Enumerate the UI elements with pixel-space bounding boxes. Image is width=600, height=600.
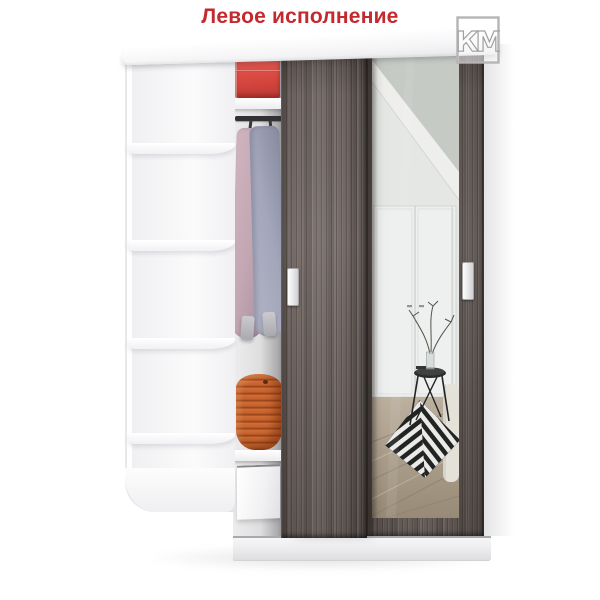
corner-shelf-cavity xyxy=(132,54,235,468)
corner-shelf-unit xyxy=(125,50,235,512)
corner-shelf xyxy=(129,433,235,444)
corner-shelf xyxy=(129,143,235,154)
km-stamp-icon: КМ xyxy=(456,16,500,64)
base-plinth xyxy=(233,536,491,561)
brand-logo-text: КМ xyxy=(456,25,500,58)
corner-shelf xyxy=(129,338,235,349)
interior-lower-shelf xyxy=(233,450,283,461)
sliding-door-mirror xyxy=(367,42,484,536)
mirror-panel xyxy=(372,56,459,518)
garment-cuff xyxy=(262,312,277,337)
hanging-garment-grey xyxy=(249,126,283,337)
page-title: Левое исполнение xyxy=(0,5,600,29)
right-side-panel-highlight xyxy=(484,44,514,536)
storage-box xyxy=(235,60,280,98)
corner-shelf xyxy=(129,240,235,251)
sliding-door-wood xyxy=(281,46,367,538)
garment-cuff xyxy=(240,316,255,341)
brand-logo: КМ xyxy=(456,16,500,64)
wood-door-handle[interactable] xyxy=(287,268,299,306)
mirror-door-handle[interactable] xyxy=(462,262,474,300)
mirror-reflection-scene xyxy=(372,56,459,518)
interior-top-shelf xyxy=(233,98,283,109)
basket-coil-center xyxy=(263,380,268,384)
wardrobe-interior xyxy=(233,52,283,536)
storage-box-lid xyxy=(235,70,280,72)
corner-unit-bottom xyxy=(125,468,235,512)
product-image: Левое исполнение КМ xyxy=(0,0,600,600)
hanging-rail xyxy=(235,116,282,121)
interior-drawer[interactable] xyxy=(237,464,280,520)
wicker-basket xyxy=(236,374,282,450)
